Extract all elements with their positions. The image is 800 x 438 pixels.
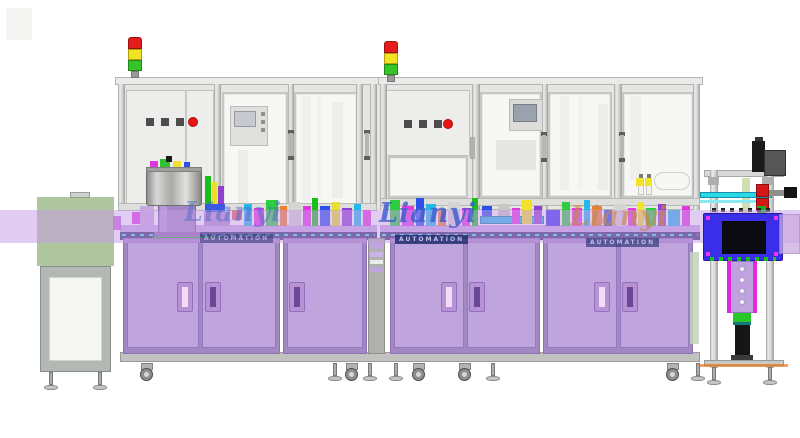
- drum-part: [173, 161, 181, 167]
- handle-slot: [599, 287, 605, 307]
- signal-light-red: [384, 41, 398, 53]
- drum-part: [166, 156, 172, 162]
- leveling-foot-stem: [394, 363, 398, 376]
- panel-button: [404, 120, 412, 128]
- silhouette: [332, 102, 343, 198]
- handle-slot: [446, 287, 452, 307]
- caster-hub: [144, 372, 149, 377]
- frame-post: [380, 84, 387, 210]
- silhouette: [630, 96, 641, 180]
- leveling-foot-base: [389, 376, 403, 381]
- press-hole: [739, 266, 745, 272]
- shaft: [769, 190, 785, 196]
- handle-cap: [364, 156, 370, 160]
- leveling-foot-base: [328, 376, 342, 381]
- door-handle: [470, 137, 475, 159]
- motor-body: [764, 150, 786, 176]
- cover-cap: [70, 192, 90, 198]
- hmi-screen: [513, 104, 537, 122]
- handle-slot: [182, 287, 188, 307]
- press-hole: [739, 299, 745, 305]
- drum-rim: [146, 167, 202, 172]
- caster-hub: [349, 372, 354, 377]
- door-handle: [365, 133, 369, 157]
- leveling-foot-base: [486, 376, 500, 381]
- leveling-foot-base: [691, 376, 705, 381]
- frame-post: [118, 84, 125, 210]
- highlight-band: [0, 210, 800, 243]
- unit-dot: [774, 252, 778, 256]
- silhouette: [317, 96, 322, 202]
- handle-cap: [619, 158, 625, 162]
- signal-tower-pole: [131, 71, 139, 78]
- panel-button: [146, 118, 154, 126]
- unit-dot: [706, 252, 710, 256]
- press-hole: [739, 277, 745, 283]
- leveling-foot-base: [707, 380, 721, 385]
- door-window: [388, 156, 468, 198]
- caster-hub: [462, 372, 467, 377]
- press-hole: [739, 288, 745, 294]
- station-right-panel: [779, 214, 800, 254]
- handle-slot: [627, 287, 633, 307]
- door-handle: [289, 133, 293, 157]
- press-rail: [753, 261, 757, 313]
- door-handle: [542, 135, 546, 159]
- coupling: [756, 184, 769, 197]
- leveling-foot-stem: [368, 363, 372, 376]
- machinery-block: [212, 182, 217, 204]
- faint-box: [6, 8, 32, 40]
- drum-part: [184, 162, 190, 167]
- frame-post: [693, 84, 700, 210]
- hmi-button: [261, 112, 265, 116]
- mid-stripe: [370, 252, 383, 257]
- signal-light-red: [128, 37, 142, 49]
- silhouette: [496, 140, 536, 170]
- handle-cap: [288, 156, 294, 160]
- frame-post: [370, 84, 377, 210]
- panel-button: [434, 120, 442, 128]
- hmi-screen: [234, 111, 256, 127]
- machinery-block: [205, 176, 211, 204]
- leveling-foot-base: [93, 385, 107, 390]
- corner-bracket: [708, 177, 719, 185]
- signal-tower-pole: [387, 75, 395, 82]
- press-cylinder: [735, 325, 750, 357]
- mid-stripe: [370, 267, 383, 272]
- machinery-block: [645, 178, 652, 186]
- signal-light-green: [128, 60, 142, 71]
- door-panel: [386, 90, 470, 156]
- machinery-block: [218, 186, 224, 204]
- mid-stripe: [370, 260, 383, 264]
- emergency-button: [188, 117, 198, 127]
- tube: [654, 172, 690, 190]
- leveling-foot-base: [44, 385, 58, 390]
- leveling-foot-stem: [696, 363, 700, 376]
- press-rail: [727, 261, 731, 313]
- signal-light-green: [384, 64, 398, 75]
- door-handle: [620, 135, 624, 159]
- frame-post: [356, 84, 363, 210]
- leveling-foot-stem: [98, 372, 102, 385]
- hmi-button: [261, 120, 265, 124]
- unit-dot: [774, 216, 778, 220]
- hmi-button: [261, 128, 265, 132]
- leveling-foot-stem: [333, 363, 337, 376]
- handle-slot: [474, 287, 480, 307]
- caster-hub: [670, 372, 675, 377]
- top-plate: [115, 77, 380, 85]
- top-plate: [378, 77, 703, 85]
- machinery-block: [636, 178, 643, 186]
- leveling-foot-stem: [491, 363, 495, 376]
- panel-button: [161, 118, 169, 126]
- leveling-foot-base: [763, 380, 777, 385]
- caster-hub: [416, 372, 421, 377]
- silhouette: [598, 104, 608, 190]
- press-block: [733, 313, 751, 322]
- handle-cap: [541, 158, 547, 162]
- blue-unit-window: [722, 221, 766, 254]
- signal-light-yellow: [128, 49, 142, 60]
- silhouette: [238, 150, 248, 205]
- panel-button: [419, 120, 427, 128]
- leveling-foot-stem: [768, 367, 772, 380]
- emergency-button: [443, 119, 453, 129]
- panel-button: [176, 118, 184, 126]
- station-side-panel: [690, 252, 699, 344]
- bowl-drum: [146, 170, 202, 206]
- leveling-foot-base: [363, 376, 377, 381]
- mid-stripe: [370, 242, 383, 249]
- stand-panel: [49, 277, 102, 361]
- knob: [784, 187, 797, 198]
- drum-part: [150, 161, 158, 167]
- handle-slot: [294, 287, 300, 307]
- signal-light-yellow: [384, 53, 398, 64]
- leveling-foot-stem: [712, 367, 716, 380]
- automation-line-render: LianyiAUTOMATIONLianyiAUTOMATIONLianyiAU…: [0, 0, 800, 438]
- handle-slot: [210, 287, 216, 307]
- silhouette: [302, 96, 311, 202]
- unit-dot: [706, 216, 710, 220]
- leveling-foot-stem: [49, 372, 53, 385]
- silhouette: [578, 96, 583, 190]
- silhouette: [560, 96, 569, 190]
